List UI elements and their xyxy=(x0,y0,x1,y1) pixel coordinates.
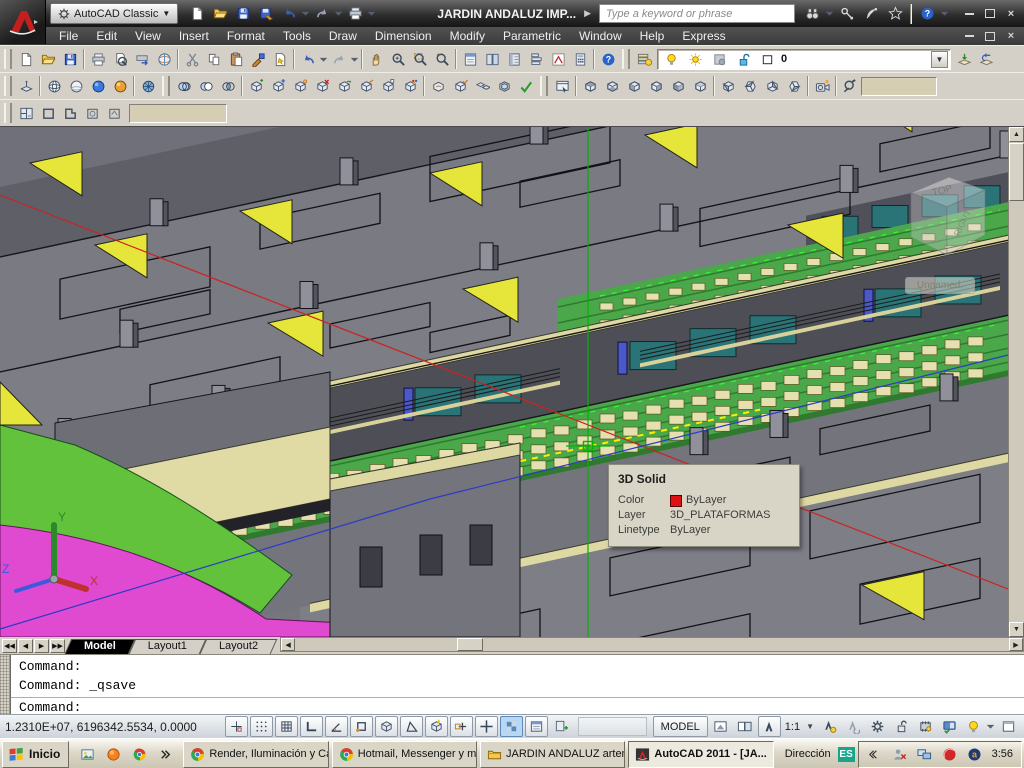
current-layer-name: 0 xyxy=(781,53,928,65)
copy-button[interactable] xyxy=(203,48,225,70)
caret-icon xyxy=(937,6,952,22)
open-button[interactable] xyxy=(37,48,59,70)
osnap-icon xyxy=(354,719,370,735)
toolbar-separator xyxy=(83,49,85,69)
redo-icon xyxy=(331,51,347,67)
toolbar-grip[interactable] xyxy=(4,103,12,123)
grid-toggle[interactable] xyxy=(275,716,298,737)
satellite-button[interactable] xyxy=(860,3,882,25)
view-toolbar xyxy=(551,75,861,97)
caret-icon xyxy=(364,6,379,22)
address-toolbar-label[interactable]: Dirección xyxy=(785,748,831,760)
taskbar-task[interactable]: JARDIN ANDALUZ artem... xyxy=(480,741,625,768)
quick-access-toolbar xyxy=(186,3,376,25)
view-right-button[interactable] xyxy=(645,75,667,97)
sphere-blue-button[interactable] xyxy=(87,75,109,97)
layers-toolbar-right xyxy=(953,48,997,70)
viewport-scale-field[interactable] xyxy=(129,104,227,123)
isolate-bulb-button[interactable] xyxy=(962,716,984,738)
search-placeholder: Type a keyword or phrase xyxy=(606,8,732,20)
task-label: Hotmail, Messenger y más... xyxy=(358,748,477,760)
tooltip-row: Color ByLayer xyxy=(618,493,790,508)
shell-button[interactable] xyxy=(493,75,515,97)
next-tab-button[interactable]: ▶ xyxy=(34,639,49,653)
tray-chevron-button[interactable] xyxy=(864,743,886,765)
tray-icons: a xyxy=(864,743,986,765)
grid-lines-icon xyxy=(279,719,295,735)
caret-icon[interactable] xyxy=(940,3,949,25)
color-swatch xyxy=(670,495,682,507)
horizontal-scrollbar[interactable]: ◀ ▶ xyxy=(280,637,1024,652)
svg-text:a: a xyxy=(972,749,977,759)
toolbar-separator xyxy=(835,76,837,96)
sphere-hidden-button[interactable] xyxy=(65,75,87,97)
scroll-left-icon[interactable]: ◀ xyxy=(281,638,295,651)
toolbar-row-viewports xyxy=(0,99,1024,126)
bulb-button[interactable] xyxy=(660,48,682,70)
extrude-faces-button[interactable] xyxy=(245,75,267,97)
tab-layout1[interactable]: Layout1 xyxy=(132,639,203,654)
intersect-button[interactable] xyxy=(217,75,239,97)
viewcube[interactable]: TOP RIGHT xyxy=(893,163,999,273)
new-icon xyxy=(189,6,205,22)
open-button[interactable] xyxy=(209,3,231,25)
save-as-icon xyxy=(258,6,274,22)
new-button[interactable] xyxy=(15,48,37,70)
view-back-icon xyxy=(692,78,708,94)
lock-open-icon xyxy=(735,51,751,67)
taper-faces-button[interactable] xyxy=(355,75,377,97)
help-button[interactable]: ? xyxy=(916,3,938,25)
markup-button[interactable] xyxy=(547,48,569,70)
snap-icon xyxy=(229,719,245,735)
properties-button[interactable] xyxy=(459,48,481,70)
application-menu-button[interactable] xyxy=(0,0,46,44)
ql-ball-button[interactable] xyxy=(102,743,124,765)
cut-button[interactable] xyxy=(181,48,203,70)
vertical-scroll-thumb[interactable] xyxy=(1009,143,1024,201)
redo-button[interactable] xyxy=(311,3,333,25)
viewport-object-icon xyxy=(84,105,100,121)
paste-plus-icon xyxy=(553,719,569,735)
help-button[interactable]: ? xyxy=(597,48,619,70)
view-bottom-button[interactable] xyxy=(601,75,623,97)
ducs-icon xyxy=(429,719,445,735)
task-buttons: Render, Iluminación y Cá...Hotmail, Mess… xyxy=(183,741,773,768)
scroll-up-icon[interactable]: ▲ xyxy=(1009,127,1024,142)
menu-edit[interactable]: Edit xyxy=(87,29,126,43)
viewports-dialog-icon xyxy=(18,105,34,121)
plot-button[interactable] xyxy=(344,3,366,25)
prev-tab-button[interactable]: ◀ xyxy=(18,639,33,653)
title-bar: AutoCAD Classic ▼ JARDIN ANDALUZ IMP... … xyxy=(0,0,1024,27)
union-button[interactable] xyxy=(173,75,195,97)
paste-button[interactable] xyxy=(225,48,247,70)
doc-minimize-button[interactable] xyxy=(959,29,979,43)
toolbar-grip[interactable] xyxy=(162,76,170,96)
sheet-set-icon xyxy=(528,51,544,67)
quick-launch-bar xyxy=(72,742,180,767)
task-label: JARDIN ANDALUZ artem... xyxy=(506,748,625,760)
separate-button[interactable] xyxy=(471,75,493,97)
tray-ball-icon xyxy=(942,746,958,762)
undo-icon xyxy=(281,6,297,22)
match-properties-button[interactable] xyxy=(247,48,269,70)
standard-toolbar: ? xyxy=(15,48,619,70)
polar-tracking-toggle[interactable] xyxy=(325,716,348,737)
subtract-button[interactable] xyxy=(195,75,217,97)
restore-button[interactable] xyxy=(980,6,1000,22)
lock-status-button[interactable] xyxy=(890,716,912,738)
hide-button[interactable] xyxy=(15,75,37,97)
layer-state-icons xyxy=(660,48,778,70)
menu-dimension[interactable]: Dimension xyxy=(366,29,441,43)
layer-dropdown-arrow[interactable]: ▼ xyxy=(931,51,948,68)
tool-palettes-icon xyxy=(506,51,522,67)
menu-bar: FileEditViewInsertFormatToolsDrawDimensi… xyxy=(0,27,1024,45)
ql-chrome-button[interactable] xyxy=(128,743,150,765)
zoom-window-icon xyxy=(412,51,428,67)
zoom-realtime-button[interactable] xyxy=(387,48,409,70)
open-icon xyxy=(40,51,56,67)
toolbar-lock xyxy=(550,716,572,738)
annotation-scale-value[interactable]: 1:1 xyxy=(785,721,800,733)
star-button[interactable] xyxy=(884,3,906,25)
view-front-icon xyxy=(670,78,686,94)
workspace-name: AutoCAD Classic xyxy=(74,8,158,20)
autocad-application-window: AutoCAD Classic ▼ JARDIN ANDALUZ IMP... … xyxy=(0,0,1024,768)
view-front-button[interactable] xyxy=(667,75,689,97)
viewport-single-button[interactable] xyxy=(37,102,59,124)
zoom-arrow-icon xyxy=(842,78,858,94)
menu-tools[interactable]: Tools xyxy=(274,29,320,43)
3d-dwf-button[interactable] xyxy=(153,48,175,70)
view-right-icon xyxy=(648,78,664,94)
view-left-button[interactable] xyxy=(623,75,645,97)
switch-on-button[interactable] xyxy=(938,716,960,738)
sphere-gold-button[interactable] xyxy=(109,75,131,97)
make-object-layer-current-icon xyxy=(956,51,972,67)
tray-user-icon xyxy=(892,746,908,762)
drawing-canvas[interactable]: YXZ xyxy=(0,127,1008,637)
match-properties-icon xyxy=(250,51,266,67)
layer-previous-button[interactable] xyxy=(975,48,997,70)
etransmit-button[interactable] xyxy=(269,48,291,70)
caret-icon[interactable] xyxy=(825,3,834,25)
dynamic-input-toggle[interactable] xyxy=(450,716,473,737)
3d-object-snap-toggle[interactable] xyxy=(375,716,398,737)
tab-layout2[interactable]: Layout2 xyxy=(203,639,274,654)
offset-faces-button[interactable] xyxy=(289,75,311,97)
toolbar-separator xyxy=(241,76,243,96)
cut-icon xyxy=(184,51,200,67)
check-validate-button[interactable] xyxy=(515,75,537,97)
layer-properties-button[interactable] xyxy=(633,48,655,70)
toolbar-grip[interactable] xyxy=(622,49,630,69)
caret-icon[interactable] xyxy=(350,48,359,70)
sun-icon xyxy=(687,51,703,67)
ann-visible-button[interactable] xyxy=(818,716,840,738)
taskbar-clock[interactable]: 3:56 xyxy=(989,748,1016,760)
save-as-button[interactable] xyxy=(255,3,277,25)
rollover-tooltip: 3D Solid Color ByLayer Layer 3D_PLATAFOR… xyxy=(608,464,800,547)
ql-chevron-button[interactable] xyxy=(154,743,176,765)
vertical-scrollbar[interactable]: ▲ ▼ xyxy=(1008,127,1024,637)
scale-dropdown-icon[interactable]: ▼ xyxy=(806,722,814,731)
caret-icon[interactable] xyxy=(986,716,995,738)
tooltip-row: Linetype ByLayer xyxy=(618,523,790,538)
paste-icon xyxy=(228,51,244,67)
plot-button[interactable] xyxy=(87,48,109,70)
iso-ne-button[interactable] xyxy=(761,75,783,97)
search-input[interactable]: Type a keyword or phrase xyxy=(599,4,795,23)
toolbar-grip[interactable] xyxy=(4,76,12,96)
named-view-field[interactable] xyxy=(861,77,937,96)
qv-layouts-icon xyxy=(713,719,729,735)
clean-button[interactable] xyxy=(449,75,471,97)
undo-icon xyxy=(300,51,316,67)
ql-chevron-icon xyxy=(157,746,173,762)
view-name-label[interactable]: Unnamed. xyxy=(905,277,975,294)
ortho-mode-toggle[interactable] xyxy=(300,716,323,737)
taskbar-task[interactable]: AutoCAD 2011 - [JA... xyxy=(628,741,773,768)
intersect-icon xyxy=(220,78,236,94)
dynamic-ucs-toggle[interactable] xyxy=(425,716,448,737)
render-toolbar xyxy=(15,75,159,97)
close-button[interactable]: × xyxy=(1001,6,1021,22)
annotation-person-icon xyxy=(762,720,776,734)
menu-modify[interactable]: Modify xyxy=(441,29,494,43)
copy-faces-button[interactable] xyxy=(377,75,399,97)
rotate-faces-button[interactable] xyxy=(333,75,355,97)
tab-model[interactable]: Model xyxy=(68,639,132,654)
ann-auto-button[interactable] xyxy=(842,716,864,738)
caret-icon[interactable] xyxy=(319,48,328,70)
imprint-button[interactable] xyxy=(427,75,449,97)
menu-window[interactable]: Window xyxy=(570,29,631,43)
toolbar-grip[interactable] xyxy=(540,76,548,96)
menu-draw[interactable]: Draw xyxy=(320,29,366,43)
tool-palettes-button[interactable] xyxy=(503,48,525,70)
document-window-controls: × xyxy=(959,29,1024,43)
toolbar-separator xyxy=(423,76,425,96)
camera-button[interactable] xyxy=(811,75,833,97)
language-indicator[interactable]: ES xyxy=(838,747,855,762)
coordinate-display[interactable]: 1.2310E+07, 6196342.5534, 0.0000 xyxy=(5,720,223,734)
toolbar-separator xyxy=(593,49,595,69)
paste-plus-button[interactable] xyxy=(550,716,572,738)
quick-properties-toggle[interactable] xyxy=(525,716,548,737)
viewports-dialog-button[interactable] xyxy=(15,102,37,124)
caret-icon xyxy=(822,6,837,22)
scroll-down-icon[interactable]: ▼ xyxy=(1009,622,1024,637)
lock-open-button[interactable] xyxy=(732,48,754,70)
gear-icon xyxy=(58,8,70,20)
gear-button[interactable] xyxy=(866,716,888,738)
help-icon: ? xyxy=(600,51,616,67)
chevron-down-icon: ▼ xyxy=(162,9,170,18)
object-snap-toggle[interactable] xyxy=(350,716,373,737)
qv-drawings-icon xyxy=(737,719,753,735)
tray-avast-button[interactable]: a xyxy=(964,743,986,765)
named-views-button[interactable] xyxy=(551,75,573,97)
menu-parametric[interactable]: Parametric xyxy=(494,29,570,43)
viewport-polygonal-button[interactable] xyxy=(59,102,81,124)
star-icon xyxy=(887,6,903,22)
move-faces-button[interactable] xyxy=(267,75,289,97)
dyn-icon xyxy=(454,719,470,735)
command-window-grip[interactable] xyxy=(0,655,10,714)
show-lineweight-toggle[interactable] xyxy=(475,716,498,737)
sun-button[interactable] xyxy=(684,48,706,70)
copy-faces-icon xyxy=(380,78,396,94)
delete-faces-button[interactable] xyxy=(311,75,333,97)
toolbar-separator xyxy=(575,76,577,96)
ql-ball-icon xyxy=(105,746,121,762)
annotation-scale-button[interactable] xyxy=(758,716,781,737)
render-button[interactable] xyxy=(137,75,159,97)
iso-sw-button[interactable] xyxy=(717,75,739,97)
properties-icon xyxy=(462,51,478,67)
menu-insert[interactable]: Insert xyxy=(170,29,218,43)
grid-dots-icon xyxy=(254,719,270,735)
workspace-switcher[interactable]: AutoCAD Classic ▼ xyxy=(50,3,178,24)
plot-icon xyxy=(90,51,106,67)
snap-mode-toggle[interactable] xyxy=(225,716,248,737)
ql-image-button[interactable] xyxy=(76,743,98,765)
copy-icon xyxy=(206,51,222,67)
offset-faces-icon xyxy=(292,78,308,94)
zoom-window-button[interactable] xyxy=(409,48,431,70)
last-tab-button[interactable]: ▶▶ xyxy=(50,639,65,653)
model-space-button[interactable]: MODEL xyxy=(653,716,708,737)
viewport-object-button[interactable] xyxy=(81,102,103,124)
menu-express[interactable]: Express xyxy=(673,29,734,43)
start-button[interactable]: Inicio xyxy=(2,741,69,768)
tooltip-row: Layer 3D_PLATAFORMAS xyxy=(618,508,790,523)
pan-button[interactable] xyxy=(365,48,387,70)
caret-icon[interactable] xyxy=(367,3,376,25)
isolate-bulb-icon xyxy=(965,719,981,735)
doc-close-button[interactable]: × xyxy=(1001,29,1021,43)
scroll-right-icon[interactable]: ▶ xyxy=(1009,638,1023,651)
sphere-blue-icon xyxy=(90,78,106,94)
toolbar-separator xyxy=(293,49,295,69)
hw-accel-button[interactable] xyxy=(914,716,936,738)
doc-restore-button[interactable] xyxy=(980,29,1000,43)
print-preview-button[interactable] xyxy=(109,48,131,70)
make-object-layer-current-button[interactable] xyxy=(953,48,975,70)
object-snap-tracking-toggle[interactable] xyxy=(400,716,423,737)
tray-user-button[interactable] xyxy=(889,743,911,765)
layout-tab-row: ◀◀ ◀ ▶ ▶▶ Model Layout1 Layout2 ◀ ▶ xyxy=(0,636,1024,654)
horizontal-scroll-thumb[interactable] xyxy=(457,638,483,651)
undo-button[interactable] xyxy=(278,3,300,25)
tray-net-button[interactable] xyxy=(914,743,936,765)
tray-ball-button[interactable] xyxy=(939,743,961,765)
svg-text:Z: Z xyxy=(2,562,9,576)
show-transparency-toggle[interactable] xyxy=(500,716,523,737)
menu-view[interactable]: View xyxy=(126,29,170,43)
tray-net-icon xyxy=(917,746,933,762)
title-expand-icon[interactable]: ▶ xyxy=(584,8,591,19)
ql-chrome-icon xyxy=(131,746,147,762)
print-preview-icon xyxy=(112,51,128,67)
menu-format[interactable]: Format xyxy=(218,29,274,43)
camera-icon xyxy=(814,78,830,94)
zoom-previous-button[interactable] xyxy=(431,48,453,70)
color-faces-button[interactable] xyxy=(399,75,421,97)
grid-display-toggle[interactable] xyxy=(250,716,273,737)
binoculars-icon xyxy=(804,6,820,22)
crosshair-icon xyxy=(479,719,495,735)
view-top-button[interactable] xyxy=(579,75,601,97)
minimize-button[interactable] xyxy=(959,6,979,22)
solid-editing-toolbar xyxy=(173,75,537,97)
autocad-logo-icon xyxy=(6,5,40,39)
sheet-set-button[interactable] xyxy=(525,48,547,70)
clean-screen-button[interactable] xyxy=(997,716,1019,738)
design-center-button[interactable] xyxy=(481,48,503,70)
infocenter-toolbar: ? xyxy=(801,3,949,25)
quick-calc-button[interactable] xyxy=(569,48,591,70)
chrome-icon xyxy=(190,746,205,762)
save-button[interactable] xyxy=(232,3,254,25)
annotation-buttons xyxy=(818,716,864,738)
drawing-viewport[interactable]: YXZ TOP RIGHT Unnamed. 3D Solid Color By… xyxy=(0,126,1024,636)
command-history: Command:Command: _qsave xyxy=(11,655,1024,697)
design-center-icon xyxy=(484,51,500,67)
command-text-area[interactable]: Command:Command: _qsave Command: xyxy=(10,655,1024,714)
vp-freeze-button[interactable] xyxy=(708,48,730,70)
save-icon xyxy=(62,51,78,67)
toolbar-row-standard: ? 0 ▼ xyxy=(0,45,1024,72)
zoom-arrow-button[interactable] xyxy=(839,75,861,97)
viewport-clip-button[interactable] xyxy=(103,102,125,124)
menu-file[interactable]: File xyxy=(50,29,87,43)
taskbar-task[interactable]: Render, Iluminación y Cá... xyxy=(183,741,328,768)
svg-text:?: ? xyxy=(605,54,610,64)
taskbar-task[interactable]: Hotmail, Messenger y más... xyxy=(332,741,477,768)
caret-icon[interactable] xyxy=(334,3,343,25)
publish-button[interactable] xyxy=(131,48,153,70)
qv-layouts-button[interactable] xyxy=(710,716,732,738)
caret-icon[interactable] xyxy=(301,3,310,25)
iso-se-button[interactable] xyxy=(739,75,761,97)
status-toggles xyxy=(225,716,548,737)
osnap3d-icon xyxy=(379,719,395,735)
menu-help[interactable]: Help xyxy=(631,29,674,43)
imprint-icon xyxy=(430,78,446,94)
swatch-button[interactable] xyxy=(756,48,778,70)
layer-dropdown[interactable]: 0 ▼ xyxy=(657,49,951,70)
toolbar-grip[interactable] xyxy=(4,49,12,69)
key-button[interactable] xyxy=(836,3,858,25)
sphere-wire-button[interactable] xyxy=(43,75,65,97)
zoom-realtime-icon xyxy=(390,51,406,67)
plot-icon xyxy=(347,6,363,22)
view-back-button[interactable] xyxy=(689,75,711,97)
autocad-icon xyxy=(635,746,650,762)
binoculars-button[interactable] xyxy=(801,3,823,25)
new-button[interactable] xyxy=(186,3,208,25)
tab-navigation: ◀◀ ◀ ▶ ▶▶ xyxy=(2,639,65,653)
qv-drawings-button[interactable] xyxy=(734,716,756,738)
first-tab-button[interactable]: ◀◀ xyxy=(2,639,17,653)
iso-nw-button[interactable] xyxy=(783,75,805,97)
bulb-icon xyxy=(663,51,679,67)
save-button[interactable] xyxy=(59,48,81,70)
